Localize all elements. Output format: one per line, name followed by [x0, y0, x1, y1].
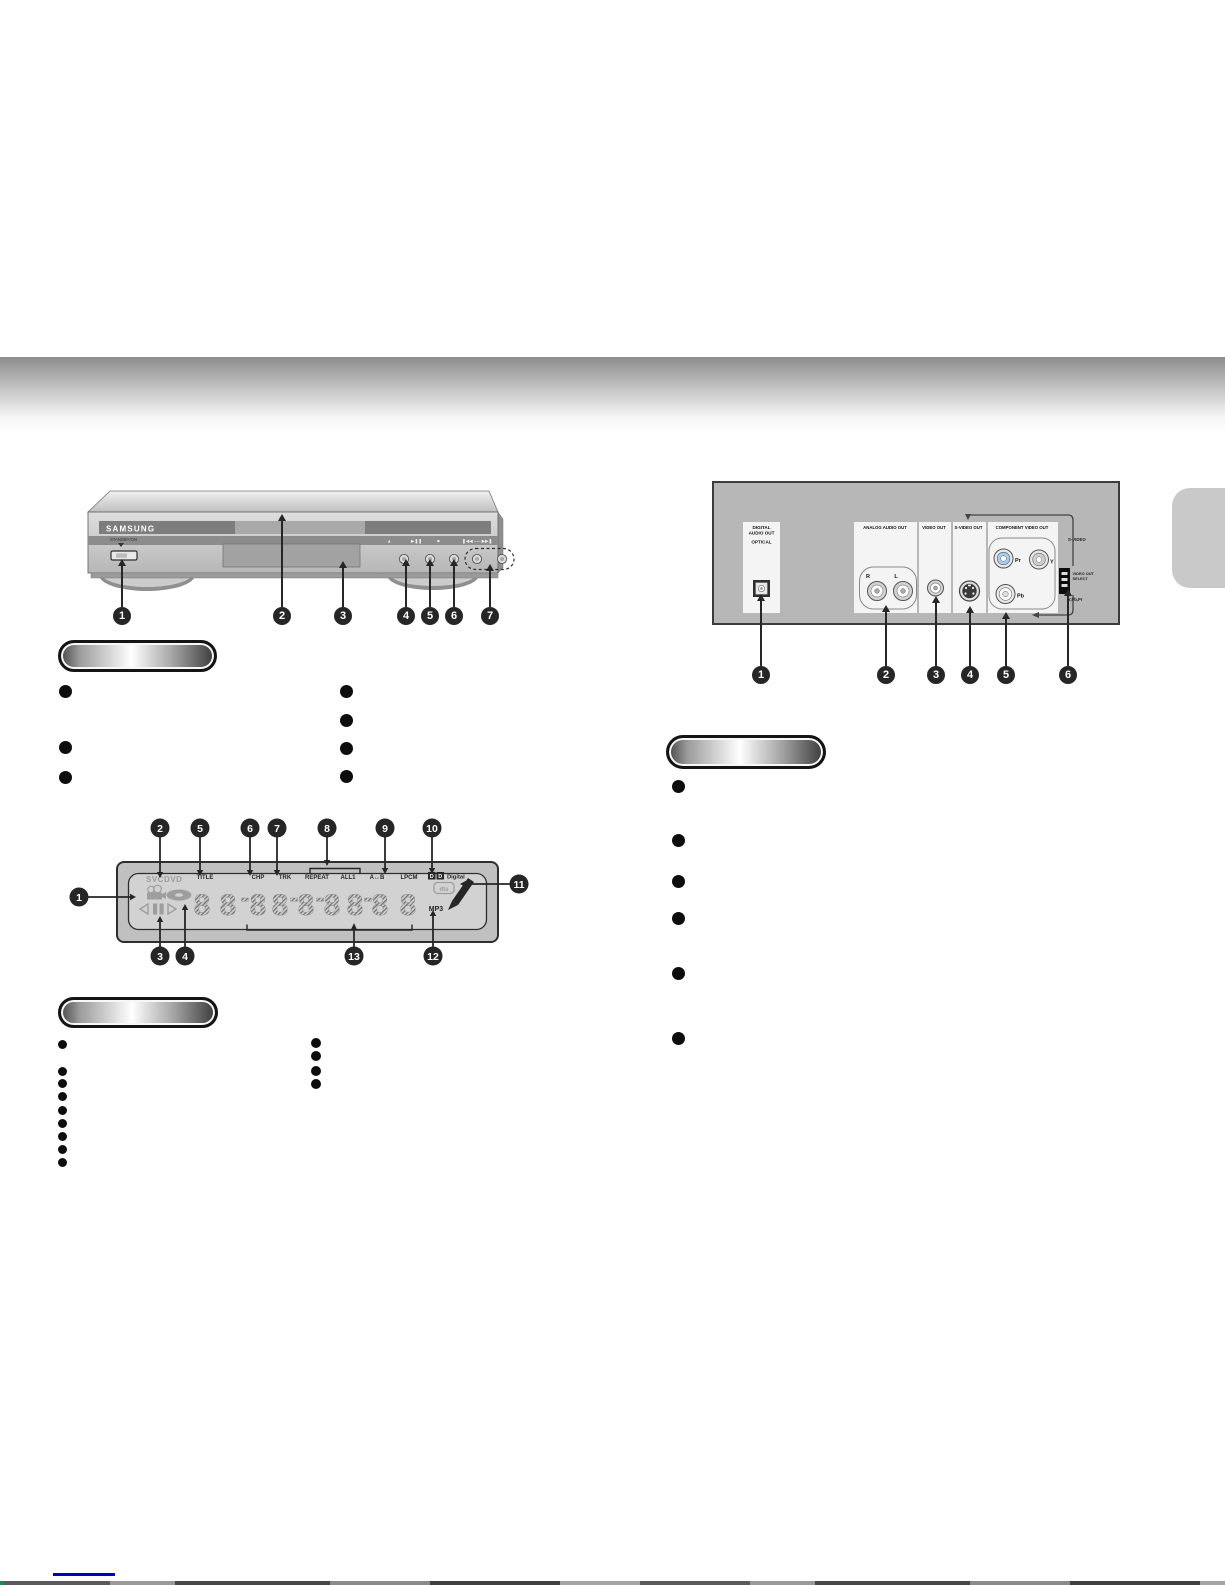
svg-text:8: 8 [400, 889, 417, 922]
digital-audio-out-label1: DIGITAL [752, 525, 770, 530]
svg-text:9: 9 [382, 823, 388, 835]
callout-line [760, 601, 762, 666]
disc-tray-front [235, 521, 365, 534]
side-s-video-label: S-VIDEO [1068, 537, 1086, 542]
stop-icon: ■ [437, 539, 440, 544]
svg-text:7: 7 [274, 823, 280, 835]
digital-audio-out-label2: AUDIO OUT [749, 530, 775, 535]
repeat-indicator: REPEAT [305, 875, 329, 881]
svg-text:13: 13 [348, 951, 360, 963]
list-bullet [340, 685, 353, 698]
list-bullet [340, 770, 353, 783]
list-bullet [672, 780, 685, 793]
list-bullet [59, 685, 72, 698]
open-close-icon: ▲ [387, 539, 391, 544]
rear-callout-6: 6 [1059, 666, 1077, 684]
svg-text:8: 8 [220, 889, 237, 922]
display-section-pill [58, 997, 218, 1028]
front-callout-3: 3 [334, 607, 352, 625]
component-video-out-label: COMPONENT VIDEO OUT [996, 525, 1049, 530]
analog-audio-out-label: ANALOG AUDIO OUT [863, 525, 907, 530]
s-video-out-label: S-VIDEO OUT [955, 525, 983, 530]
list-bullet [58, 1106, 67, 1115]
all1-indicator: ALL1 [341, 875, 357, 881]
rear-callout-4: 4 [961, 666, 979, 684]
callout-arrow [486, 564, 494, 571]
list-bullet [58, 1132, 67, 1141]
skip-forward-button[interactable] [497, 554, 506, 563]
list-bullet [58, 1040, 67, 1049]
dolby-digital-label: Digital [447, 875, 465, 881]
list-bullet [59, 771, 72, 784]
jack-y-label: Y [1050, 560, 1054, 566]
component-pb-jack[interactable] [996, 585, 1015, 604]
svg-text:dts: dts [440, 887, 450, 893]
svg-text:8: 8 [372, 889, 389, 922]
mp3-indicator: MP3 [429, 906, 444, 913]
list-bullet [340, 742, 353, 755]
unit-base [91, 573, 498, 578]
list-bullet [58, 1067, 67, 1076]
callout-line [885, 612, 887, 666]
video-out-label: VIDEO OUT [922, 525, 946, 530]
svg-text:8: 8 [347, 889, 364, 922]
chp-indicator: CHP [252, 875, 265, 881]
list-bullet [59, 741, 72, 754]
callout-line [969, 613, 971, 666]
rear-panel-figure: DIGITAL AUDIO OUT OPTICAL ANALOG AUDIO O… [712, 481, 1120, 625]
audio-l-jack[interactable] [894, 582, 913, 601]
brand-logo: SAMSUNG [106, 525, 155, 534]
disc-icon [167, 890, 192, 901]
footer-link-underline[interactable] [53, 1573, 115, 1576]
svg-text:6: 6 [247, 823, 253, 835]
callout-arrow [278, 514, 286, 521]
svg-text:8: 8 [272, 889, 289, 922]
list-bullet [58, 1145, 67, 1154]
callout-line [121, 566, 123, 607]
callout-line [429, 566, 431, 607]
skip-back-button[interactable] [472, 554, 481, 563]
callout-arrow [882, 605, 890, 612]
callout-arrow [339, 561, 347, 568]
list-bullet [311, 1051, 321, 1061]
svg-text:10: 10 [426, 823, 438, 835]
list-bullet [672, 912, 685, 925]
svg-text:D: D [438, 874, 442, 880]
page-corner-mark [0, 1581, 4, 1585]
svg-text:8: 8 [324, 823, 330, 835]
front-callout-6: 6 [445, 607, 463, 625]
front-callout-4: 4 [397, 607, 415, 625]
list-bullet [672, 834, 685, 847]
title-indicator: TITLE [197, 875, 214, 881]
front-callout-7: 7 [481, 607, 499, 625]
svg-text:8: 8 [324, 889, 341, 922]
callout-line [1005, 619, 1007, 666]
rear-callout-5: 5 [997, 666, 1015, 684]
lpcm-indicator: LPCM [401, 875, 418, 881]
callout-line [489, 571, 491, 607]
rear-callout-2: 2 [877, 666, 895, 684]
standby-label: STANDBY/ON [110, 537, 137, 542]
rear-callout-3: 3 [927, 666, 945, 684]
front-callout-5: 5 [421, 607, 439, 625]
svg-text:12: 12 [427, 951, 439, 963]
svg-text:8: 8 [250, 889, 267, 922]
jack-pr-label: Pr [1015, 558, 1022, 564]
component-pr-jack[interactable] [994, 549, 1013, 568]
svg-text:4: 4 [182, 951, 188, 963]
video-out-jack[interactable] [928, 580, 944, 596]
list-bullet [58, 1079, 67, 1088]
front-callout-2: 2 [273, 607, 291, 625]
list-bullet [672, 967, 685, 980]
callout-arrow [966, 606, 974, 613]
callout-arrow [118, 559, 126, 566]
svg-text:3: 3 [157, 951, 163, 963]
callout-line [453, 566, 455, 607]
segment-digits: 8 8 8 8 8 8 8 8 8 [194, 889, 417, 922]
front-callout-1: 1 [113, 607, 131, 625]
list-bullet [311, 1038, 321, 1048]
callout-line [342, 568, 344, 607]
list-bullet [311, 1079, 321, 1089]
list-bullet [58, 1158, 67, 1167]
svg-text:5: 5 [197, 823, 203, 835]
front-panel-figure: SAMSUNG ▲ ▶❚❚ ■ ❚◀◀ ── ▶▶❚ STANDBY/ON [85, 478, 525, 608]
callout-arrow [932, 596, 940, 603]
list-bullet [58, 1119, 67, 1128]
svg-text:1: 1 [76, 892, 82, 904]
list-bullet [58, 1092, 67, 1101]
callout-arrow [1002, 612, 1010, 619]
callout-arrow [450, 559, 458, 566]
disc-type-indicators: SVCDVD [146, 875, 182, 884]
trk-indicator: TRK [279, 875, 292, 881]
optical-label: OPTICAL [751, 540, 771, 545]
side-ypbpr-label: Y,Pb,Pr [1068, 597, 1083, 602]
callout-arrow [1064, 589, 1072, 596]
front-panel-section-pill [58, 640, 217, 672]
svg-text:8: 8 [194, 889, 211, 922]
unit-top-face [88, 491, 498, 512]
jack-pb-label: Pb [1017, 594, 1025, 600]
jack-r-label: R [866, 574, 870, 580]
svg-text:2: 2 [157, 823, 163, 835]
front-display-figure: SVCDVD TITLE CHP TRK REPEAT ALL1 A↔B LPC… [60, 818, 550, 978]
svg-text:D: D [430, 874, 434, 880]
page-header-band [0, 357, 1225, 433]
callout-line [281, 521, 283, 607]
rear-panel-section-pill [666, 735, 826, 769]
list-bullet [672, 1032, 685, 1045]
callout-line [405, 566, 407, 607]
list-bullet [672, 875, 685, 888]
callout-line [935, 603, 937, 666]
callout-arrow [426, 559, 434, 566]
s-video-jack[interactable] [960, 581, 980, 601]
list-bullet [311, 1066, 321, 1076]
rear-callout-1: 1 [752, 666, 770, 684]
page-bottom-edge [0, 1581, 1225, 1585]
callout-arrow [402, 559, 410, 566]
component-y-jack[interactable] [1030, 550, 1049, 569]
svg-text:11: 11 [513, 879, 524, 891]
callout-line [1067, 596, 1069, 666]
list-bullet [340, 714, 353, 727]
svg-text:8: 8 [298, 889, 315, 922]
page-edge-tab [1172, 488, 1225, 588]
callout-arrow [757, 594, 765, 601]
select-label2: SELECT [1073, 576, 1089, 581]
audio-r-jack[interactable] [868, 582, 887, 601]
a-b-repeat-indicator: A↔B [370, 875, 385, 881]
